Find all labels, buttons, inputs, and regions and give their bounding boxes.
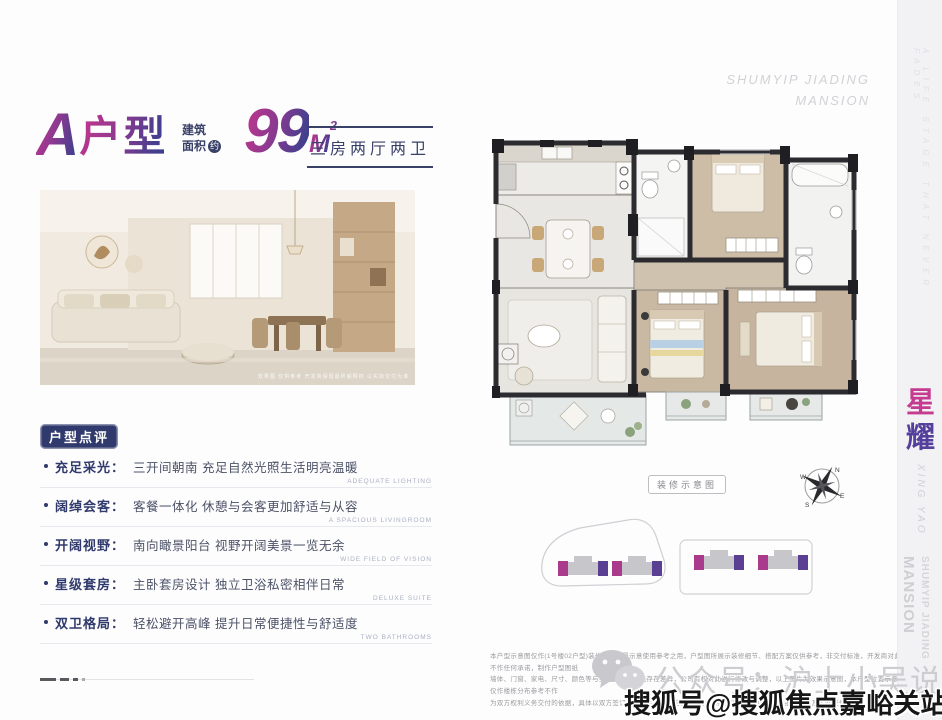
balcony-master (750, 392, 822, 420)
review-desc: 客餐一体化 休憩与会客更加舒适与从容 (133, 496, 358, 515)
review-desc: 南向瞰景阳台 视野开阔美景一览无余 (133, 535, 345, 554)
room-dining (496, 195, 634, 288)
plan-tag: 装修示意图 (648, 475, 726, 494)
area-label-line1: 建筑 (182, 122, 221, 138)
vertical-tagline: A LIFE STAGE THAT NEVER FADES (912, 48, 930, 348)
room-bedroom-3 (634, 290, 726, 392)
hallway (634, 260, 786, 290)
bullet-dot (44, 620, 48, 624)
sohu-watermark-text: 搜狐号@搜狐焦点嘉峪关站 (624, 682, 942, 720)
interior-photo: 效果图 仅供参考 开发商保留最终解释权 以实际交付为准 (40, 190, 415, 385)
bullet-dot (44, 581, 48, 585)
svg-text:N: N (835, 467, 840, 474)
unit-letter: A (36, 101, 79, 168)
brand-watermark-vertical: MANSION SHUMYIP JIADING (900, 556, 930, 660)
svg-text:W: W (800, 474, 807, 481)
svg-text:E: E (840, 493, 845, 500)
area-label-line2: 面积 (182, 138, 206, 154)
review-label: 开阔视野： (55, 535, 125, 554)
footer-rule (40, 679, 254, 680)
review-section: 户型点评 充足采光： 三开间朝南 充足自然光照生活明亮温暖 ADEQUATE L… (40, 424, 432, 644)
review-en: ADEQUATE LIGHTING (40, 478, 432, 485)
review-desc: 主卧套房设计 独立卫浴私密相伴日常 (133, 574, 345, 593)
sofa (52, 290, 180, 342)
keyplan-building (758, 550, 808, 570)
interior-photo-art (40, 190, 415, 385)
room-living (496, 288, 634, 395)
area-number: 99 (244, 97, 309, 166)
review-desc: 轻松避开高峰 提升日常便捷性与舒适度 (133, 613, 358, 632)
review-label: 双卫格局： (55, 613, 125, 632)
floorplan (480, 130, 876, 464)
right-sidebar-band: A LIFE STAGE THAT NEVER FADES 星 耀 XING Y… (897, 0, 942, 720)
review-item: 开阔视野： 南向瞰景阳台 视野开阔美景一览无余 WIDE FIELD OF VI… (40, 527, 432, 566)
room-bath-2 (786, 160, 854, 288)
layout-summary: 三房两厅两卫 (307, 126, 433, 168)
review-item: 星级套房： 主卧套房设计 独立卫浴私密相伴日常 DELUXE SUITE (40, 566, 432, 605)
room-bedroom-2 (690, 152, 786, 260)
project-name-vertical: 星 耀 XING YAO (898, 386, 942, 535)
balcony-living (510, 395, 646, 445)
project-char-2: 耀 (898, 421, 942, 456)
review-en: WIDE FIELD OF VISION (40, 556, 432, 563)
review-en: DELUXE SUITE (40, 595, 432, 602)
brand-line1: SHUMYIP JIADING (688, 70, 870, 91)
bullet-dot (44, 542, 48, 546)
bullet-dot (44, 464, 48, 468)
project-char-1: 星 (898, 386, 942, 421)
review-badge: 户型点评 (40, 424, 118, 449)
review-item: 充足采光： 三开间朝南 充足自然光照生活明亮温暖 ADEQUATE LIGHTI… (40, 449, 432, 488)
area-label: 建筑 面积 约 (182, 122, 221, 154)
unit-title: A户型 (36, 100, 167, 169)
compass-icon: N E S W (796, 460, 848, 512)
project-name-en: XING YAO (915, 464, 926, 536)
dining-set (252, 316, 342, 351)
review-en: A SPACIOUS LIVINGROOM (40, 517, 432, 524)
approx-badge: 约 (208, 140, 221, 153)
bullet-dot (44, 503, 48, 507)
unit-suffix: 户型 (79, 113, 167, 160)
brand-line2: MANSION (688, 91, 870, 112)
brand-watermark-line2: SHUMYIP JIADING (919, 556, 930, 660)
keyplan-building (694, 550, 744, 570)
review-label: 充足采光： (55, 457, 125, 476)
review-item: 双卫格局： 轻松避开高峰 提升日常便捷性与舒适度 TWO BATHROOMS (40, 605, 432, 644)
review-item: 阔绰会客： 客餐一体化 休憩与会客更加舒适与从容 A SPACIOUS LIVI… (40, 488, 432, 527)
review-label: 阔绰会客： (55, 496, 125, 515)
room-kitchen (496, 143, 634, 195)
room-master-bedroom (726, 288, 854, 392)
brand-watermark-topright: SHUMYIP JIADING MANSION (688, 70, 870, 112)
floorplan-drawing (480, 130, 876, 464)
review-label: 星级套房： (55, 574, 125, 593)
svg-text:S: S (805, 502, 810, 509)
review-en: TWO BATHROOMS (40, 634, 432, 641)
photo-caption: 效果图 仅供参考 开发商保留最终解释权 以实际交付为准 (258, 373, 409, 380)
review-desc: 三开间朝南 充足自然光照生活明亮温暖 (133, 457, 358, 476)
brand-watermark-line1: MANSION (900, 556, 917, 660)
keyplan (528, 512, 818, 607)
keyplan-building (612, 556, 662, 576)
balcony-bed3 (666, 392, 726, 420)
keyplan-building (558, 556, 608, 576)
room-bath-1 (634, 152, 690, 260)
brochure-page: A户型 建筑 面积 约 99M2 三房两厅两卫 SHUMYIP JIADING … (0, 0, 942, 720)
